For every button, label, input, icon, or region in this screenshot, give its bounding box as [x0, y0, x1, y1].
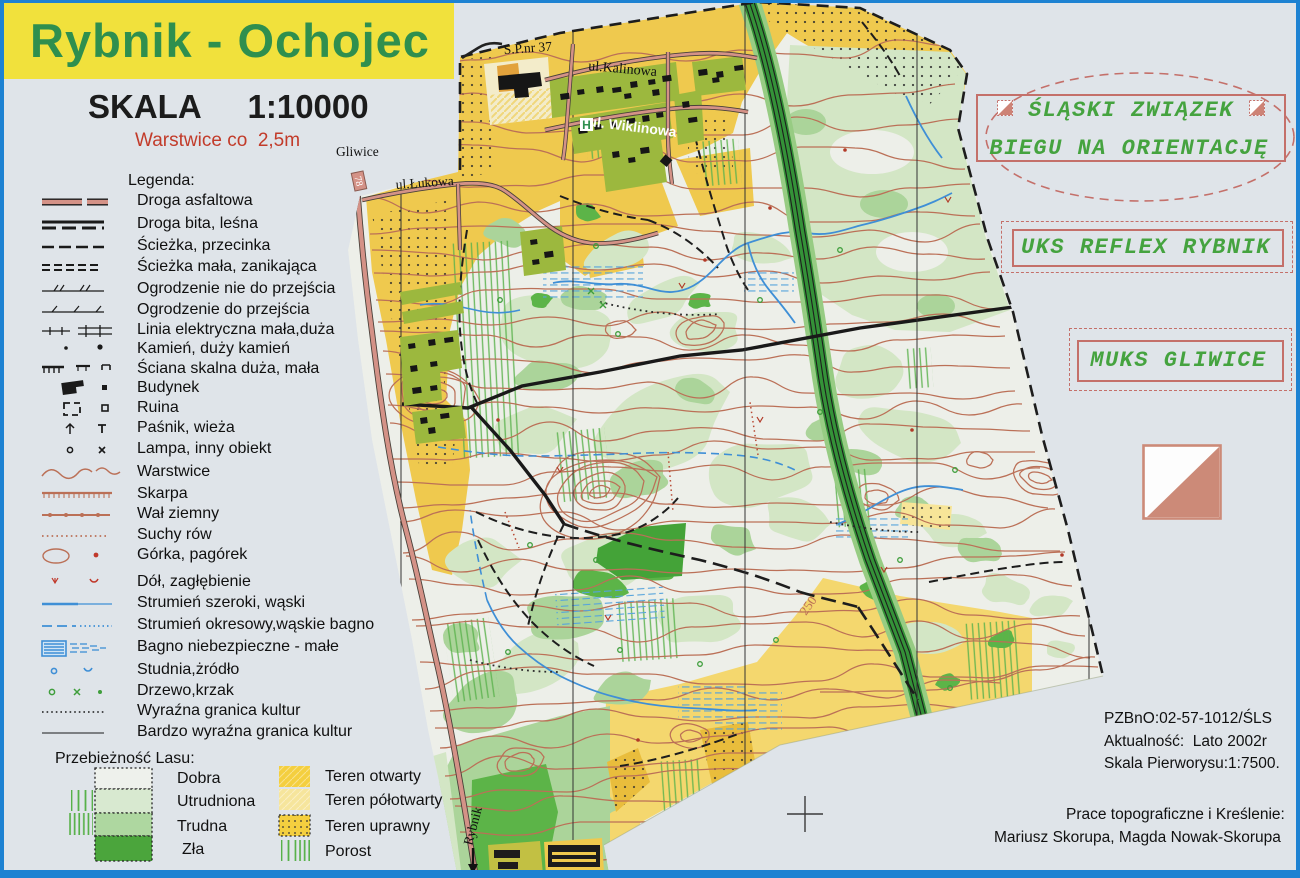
svg-text:Gliwice: Gliwice — [336, 144, 379, 159]
svg-text:H: H — [582, 118, 591, 132]
